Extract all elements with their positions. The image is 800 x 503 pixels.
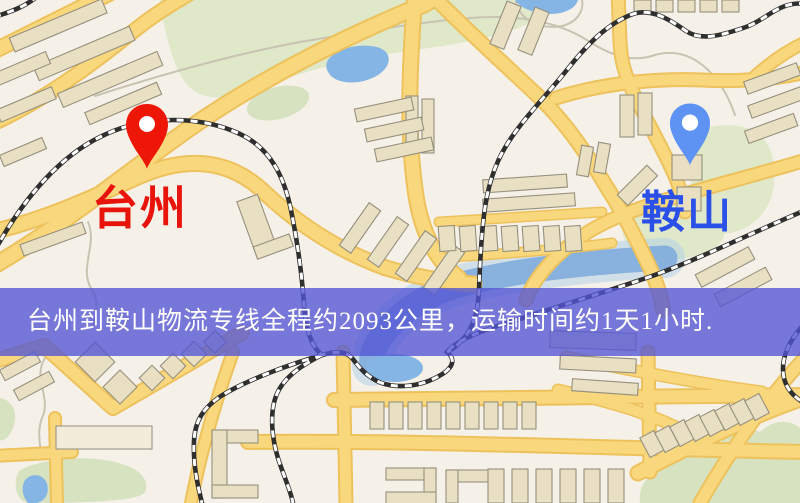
route-info-text: 台州到鞍山物流专线全程约2093公里，运输时间约1天1小时. — [0, 288, 800, 356]
destination-label: 鞍山 — [641, 176, 733, 240]
route-info-banner: 台州到鞍山物流专线全程约2093公里，运输时间约1天1小时. — [0, 288, 800, 356]
map-background — [0, 0, 800, 503]
destination-pin-icon — [669, 102, 711, 168]
origin-pin-icon — [125, 103, 169, 171]
origin-label: 台州 — [92, 172, 188, 238]
pin-hole — [682, 114, 698, 130]
pin-hole — [139, 116, 155, 132]
map-image: 台州 鞍山 台州到鞍山物流专线全程约2093公里，运输时间约1天1小时. — [0, 0, 800, 503]
